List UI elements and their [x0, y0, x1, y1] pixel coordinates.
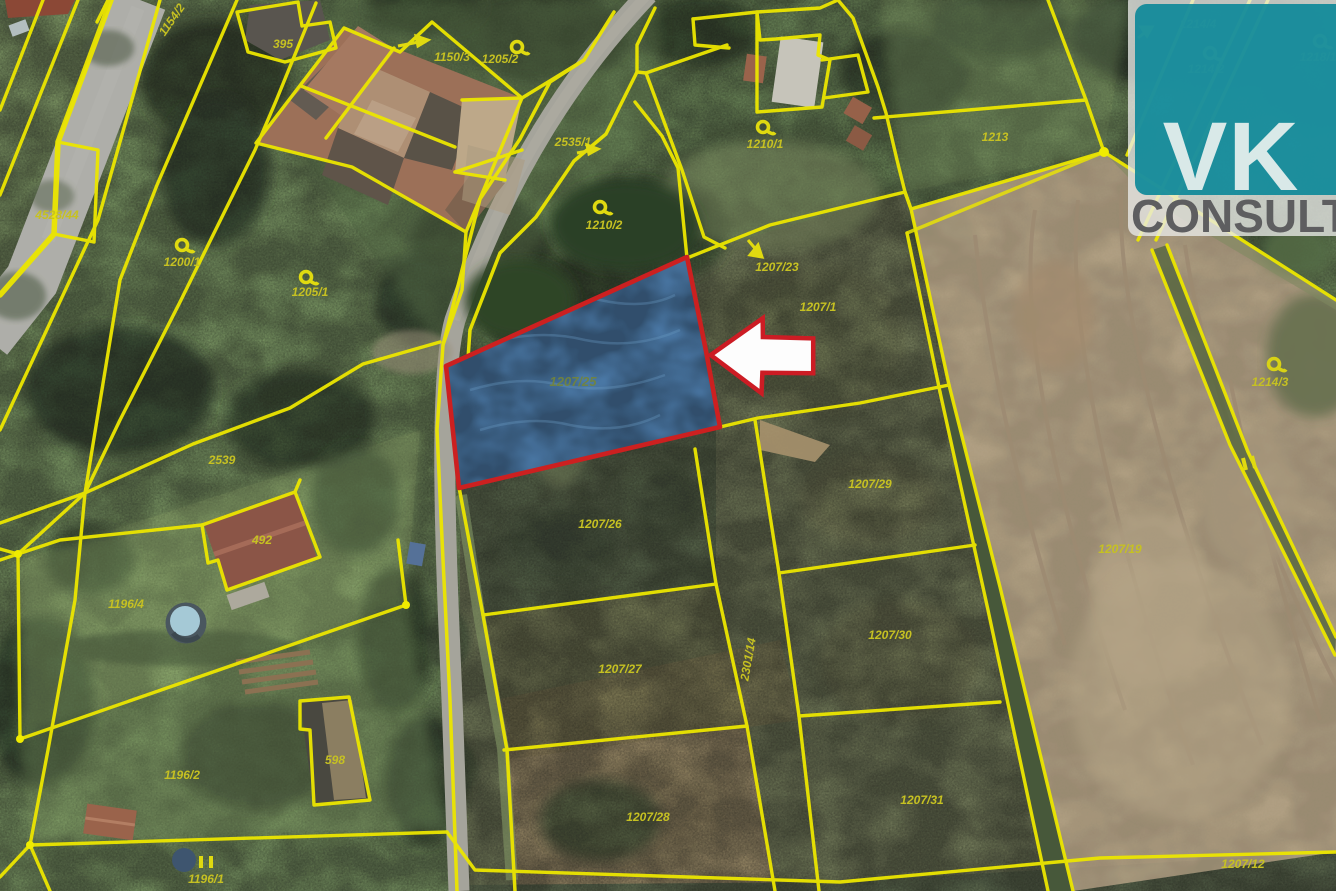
svg-text:1207/28: 1207/28 [626, 810, 670, 824]
svg-text:CONSULT: CONSULT [1131, 190, 1336, 242]
svg-text:492: 492 [251, 533, 272, 547]
svg-text:1207/29: 1207/29 [848, 477, 892, 491]
svg-text:395: 395 [273, 37, 293, 51]
svg-text:2539: 2539 [208, 453, 236, 467]
svg-text:1207/1: 1207/1 [800, 300, 837, 314]
svg-text:1207/12: 1207/12 [1221, 857, 1265, 871]
svg-text:1196/2: 1196/2 [164, 768, 200, 782]
svg-text:1207/19: 1207/19 [1098, 542, 1142, 556]
svg-text:1207/26: 1207/26 [578, 517, 622, 531]
svg-text:1207/23: 1207/23 [755, 260, 799, 274]
svg-text:1214/3: 1214/3 [1252, 375, 1289, 389]
svg-text:1210/2: 1210/2 [586, 218, 623, 232]
svg-text:1150/3: 1150/3 [434, 50, 470, 64]
svg-text:1207/31: 1207/31 [900, 793, 944, 807]
svg-text:1207/30: 1207/30 [868, 628, 912, 642]
svg-text:1205/2: 1205/2 [482, 52, 519, 66]
svg-text:1207/25: 1207/25 [550, 374, 598, 389]
svg-text:1200/1: 1200/1 [164, 255, 201, 269]
svg-text:1196/1: 1196/1 [188, 872, 224, 886]
svg-text:1210/1: 1210/1 [747, 137, 784, 151]
svg-text:1205/1: 1205/1 [292, 285, 329, 299]
svg-text:1213: 1213 [982, 130, 1009, 144]
svg-text:1196/4: 1196/4 [108, 597, 144, 611]
svg-text:1207/27: 1207/27 [598, 662, 643, 676]
svg-text:598: 598 [325, 753, 345, 767]
svg-text:4528/44: 4528/44 [34, 208, 79, 222]
